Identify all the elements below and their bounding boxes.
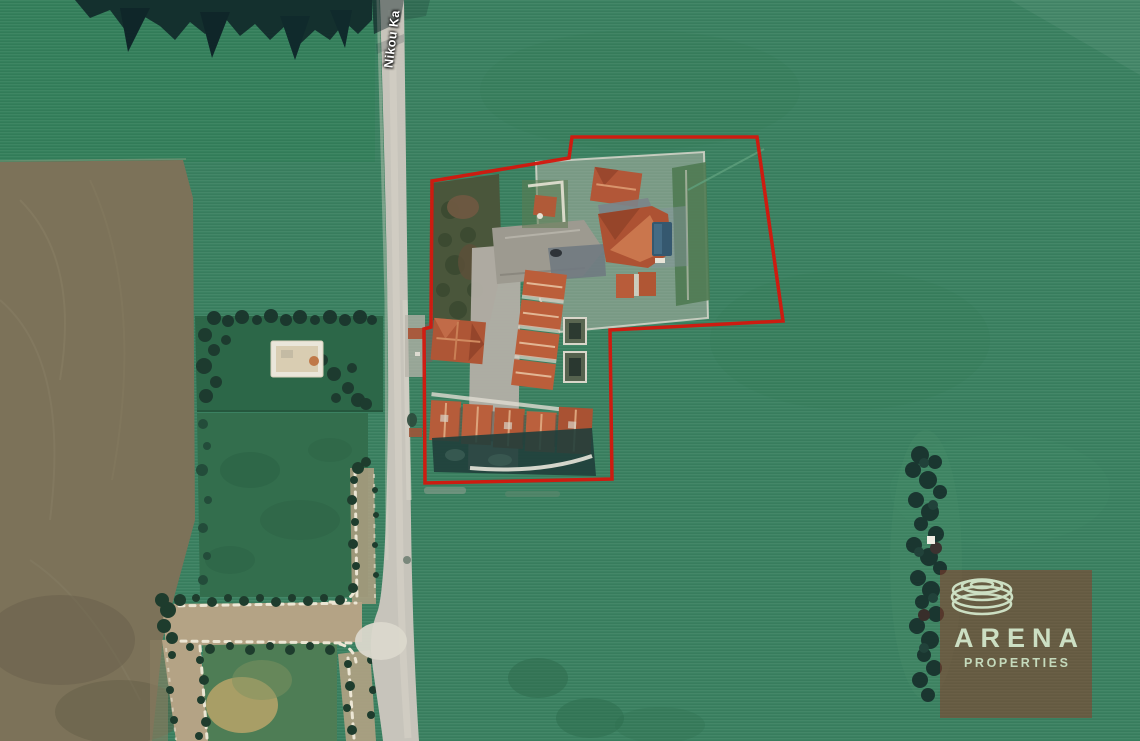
- small-structure: [522, 180, 568, 228]
- villa-west: [418, 317, 486, 368]
- small-white-structure: [927, 536, 935, 544]
- watermark-brand: ARENA: [947, 625, 1085, 652]
- green-parcel: [196, 413, 368, 597]
- arena-rings-icon: [940, 570, 1024, 618]
- watermark-panel: ARENA PROPERTIES: [940, 570, 1092, 718]
- road-junction-apron: [355, 622, 407, 660]
- farmstead-parcel: [195, 309, 383, 412]
- watermark-tagline: PROPERTIES: [961, 657, 1070, 670]
- satellite-map: Nikou Ka ARENA PROPERTIES: [0, 0, 1140, 741]
